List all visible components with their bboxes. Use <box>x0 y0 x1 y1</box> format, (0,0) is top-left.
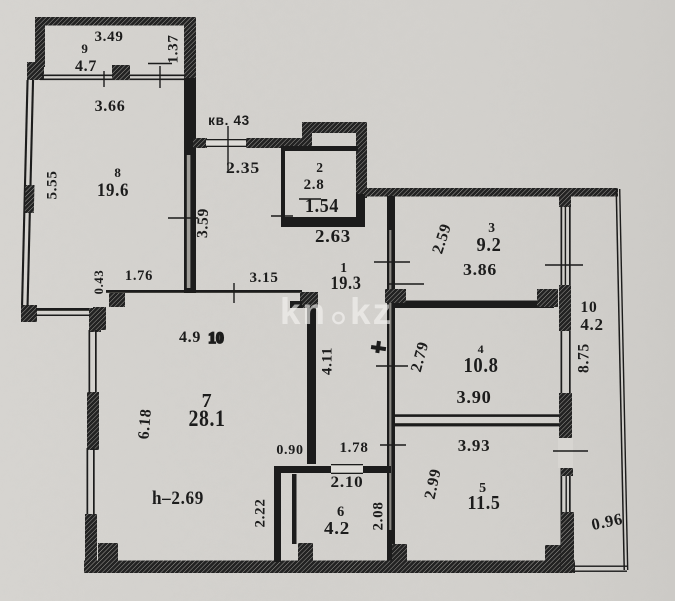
svg-text:1.54: 1.54 <box>305 195 339 217</box>
svg-text:h–2.69: h–2.69 <box>152 489 204 509</box>
svg-text:2.08: 2.08 <box>370 501 386 530</box>
svg-text:2.35: 2.35 <box>226 160 260 177</box>
svg-text:28.1: 28.1 <box>189 406 226 431</box>
svg-text:10: 10 <box>208 330 224 347</box>
svg-text:10: 10 <box>581 299 598 316</box>
svg-text:4.7: 4.7 <box>75 58 97 75</box>
svg-text:4.11: 4.11 <box>319 347 335 375</box>
svg-text:1.76: 1.76 <box>125 268 153 284</box>
svg-text:2.22: 2.22 <box>252 498 268 527</box>
svg-text:2.63: 2.63 <box>315 226 351 246</box>
svg-text:8.75: 8.75 <box>576 343 593 373</box>
svg-text:3.90: 3.90 <box>457 387 492 407</box>
svg-text:3.15: 3.15 <box>249 270 278 286</box>
svg-text:3.86: 3.86 <box>463 260 497 279</box>
svg-text:кв. 43: кв. 43 <box>208 113 250 128</box>
svg-text:3.59: 3.59 <box>194 208 212 239</box>
svg-text:11.5: 11.5 <box>468 493 501 514</box>
svg-text:1.78: 1.78 <box>339 440 368 456</box>
svg-text:9.2: 9.2 <box>477 235 502 256</box>
svg-text:kn: kn <box>280 291 327 332</box>
svg-text:6.18: 6.18 <box>135 408 155 440</box>
svg-text:0.90: 0.90 <box>276 443 303 458</box>
svg-text:19.6: 19.6 <box>97 180 129 201</box>
svg-text:4.2: 4.2 <box>324 518 350 538</box>
svg-text:2.10: 2.10 <box>331 474 364 491</box>
svg-text:3: 3 <box>488 220 495 235</box>
svg-text:10.8: 10.8 <box>464 353 499 377</box>
svg-text:3.66: 3.66 <box>95 98 126 115</box>
svg-text:8: 8 <box>114 165 121 180</box>
svg-text:kz: kz <box>350 291 393 332</box>
svg-text:0.43: 0.43 <box>92 270 106 295</box>
svg-text:3.93: 3.93 <box>458 436 491 455</box>
svg-text:1: 1 <box>340 260 347 275</box>
svg-text:5.55: 5.55 <box>44 170 60 199</box>
svg-text:3.49: 3.49 <box>94 29 123 45</box>
svg-text:2.8: 2.8 <box>304 177 325 193</box>
svg-text:4.2: 4.2 <box>580 315 603 334</box>
svg-text:2: 2 <box>316 160 323 175</box>
svg-text:1.37: 1.37 <box>165 34 181 63</box>
svg-text:9: 9 <box>81 41 88 56</box>
svg-text:4.9: 4.9 <box>179 329 201 346</box>
